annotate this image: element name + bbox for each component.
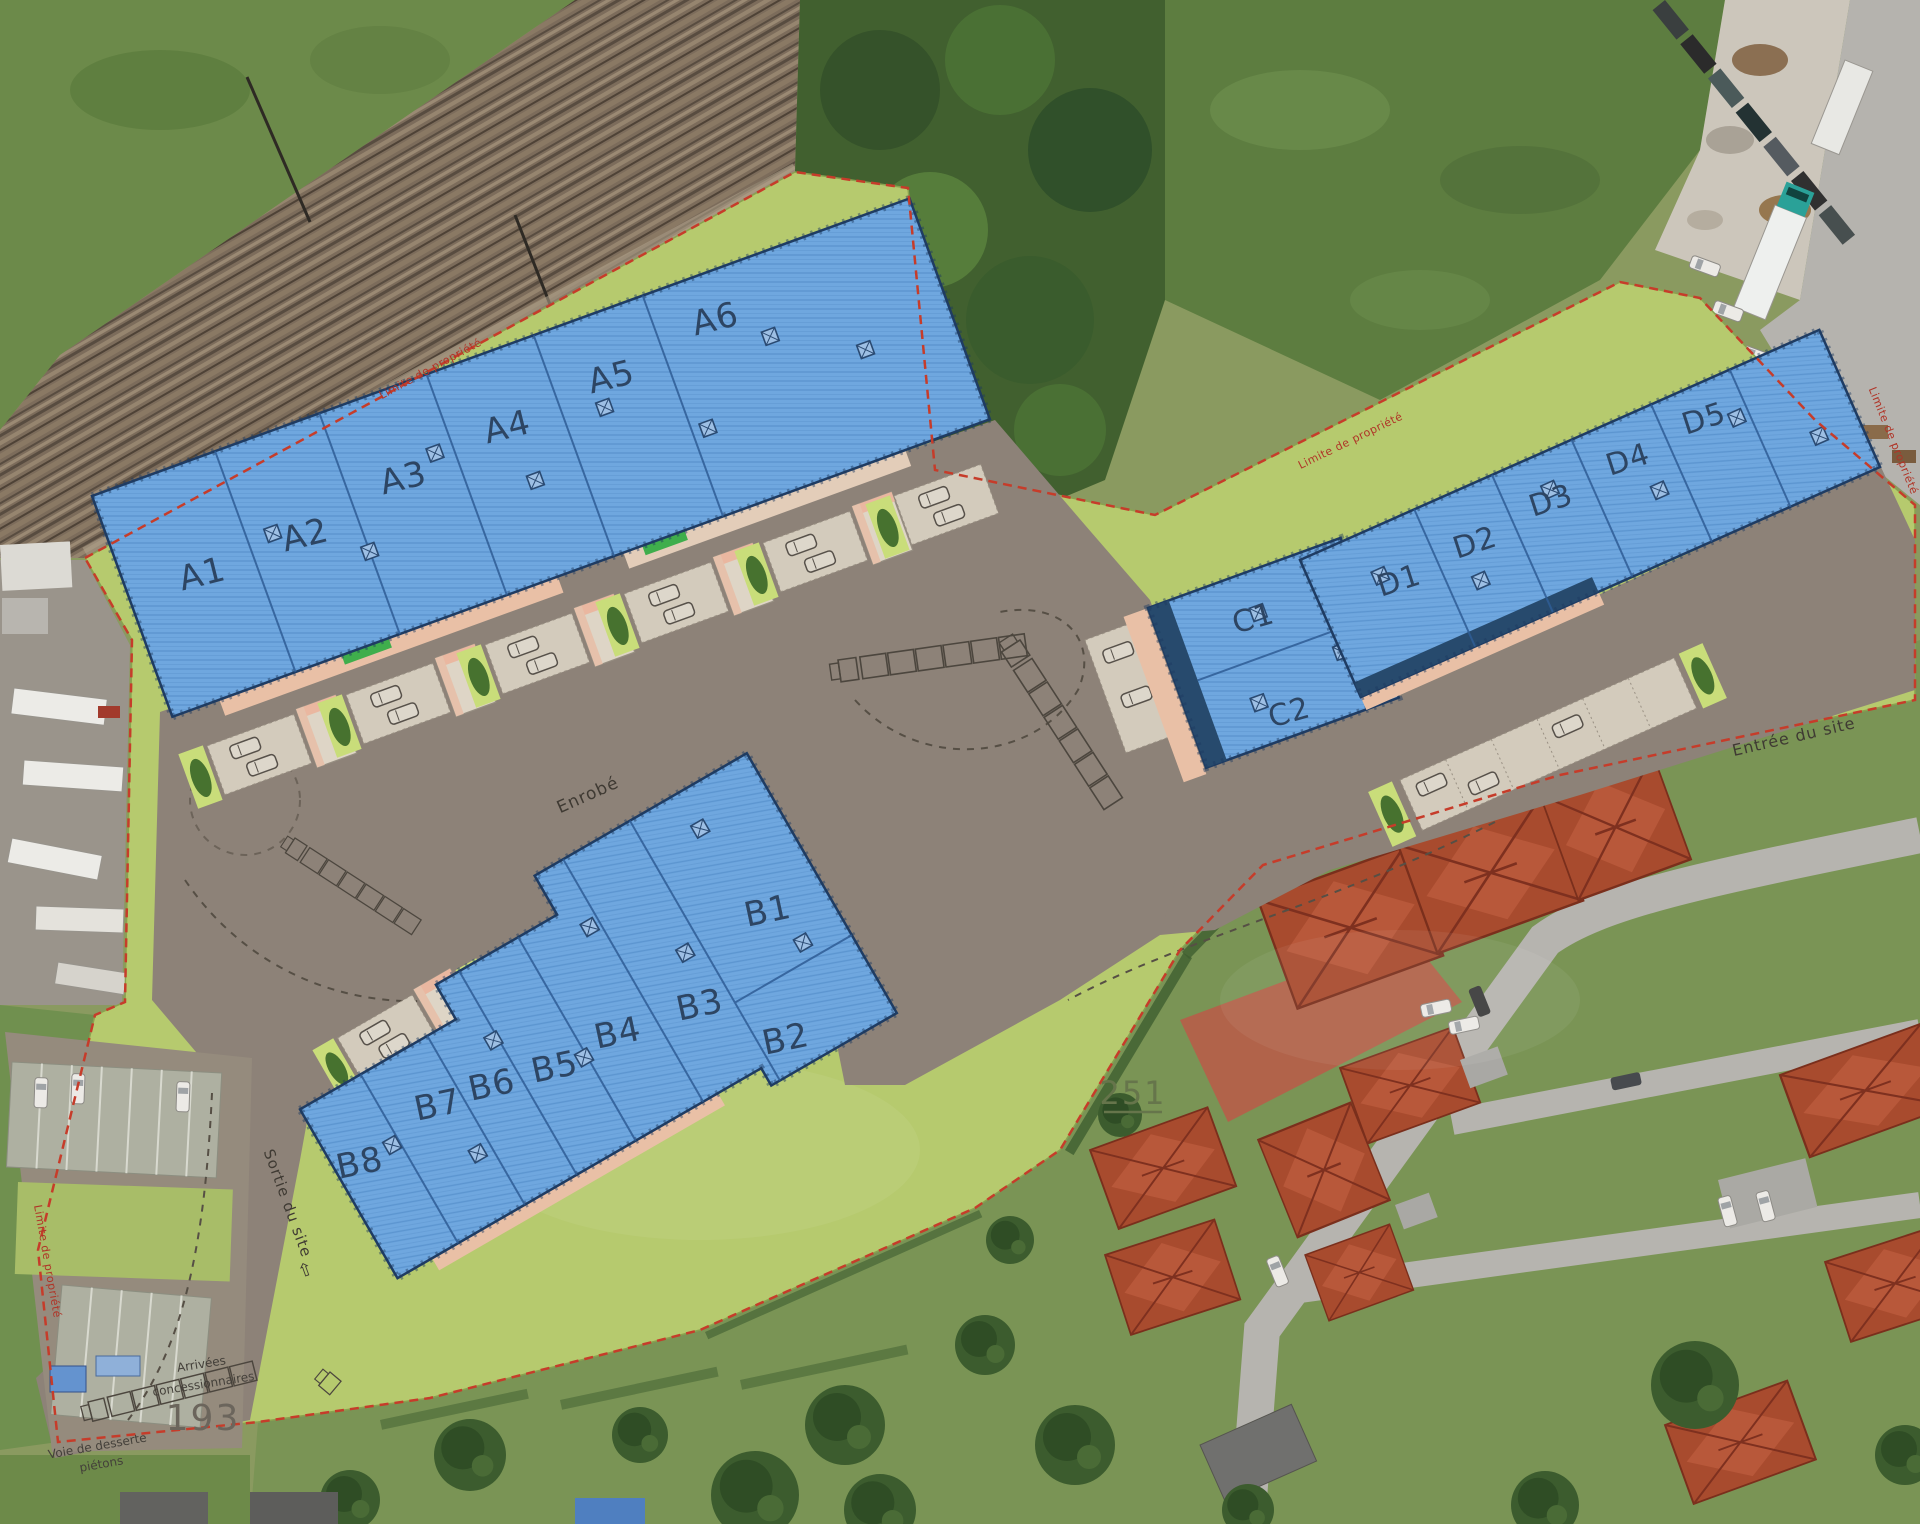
parked-car: [34, 1078, 48, 1108]
shed: [120, 1492, 208, 1524]
blue-structure: [575, 1498, 645, 1524]
parcel-number-251: 251: [1099, 1074, 1166, 1112]
transformer-box: [50, 1366, 86, 1392]
tree: [805, 1385, 885, 1465]
parcel-number-193: 193: [166, 1398, 241, 1439]
tree: [955, 1315, 1015, 1375]
shed: [248, 1492, 338, 1524]
trailer: [35, 906, 124, 933]
existing-building: [0, 541, 72, 591]
parked-car: [176, 1082, 190, 1112]
tree: [986, 1216, 1034, 1264]
aerial-site-plan-screenshot: A1 A2 A3 A4 A5 A6 B1 B2 B3 B4 B5 B6 B7 B…: [0, 0, 1920, 1524]
blue-shelter: [96, 1356, 140, 1376]
tree: [1035, 1405, 1115, 1485]
tree: [1651, 1341, 1739, 1429]
tree: [612, 1407, 668, 1463]
red-car: [98, 706, 120, 718]
existing-building: [2, 598, 48, 634]
tree: [434, 1419, 506, 1491]
site-plan-map: A1 A2 A3 A4 A5 A6 B1 B2 B3 B4 B5 B6 B7 B…: [0, 0, 1920, 1524]
